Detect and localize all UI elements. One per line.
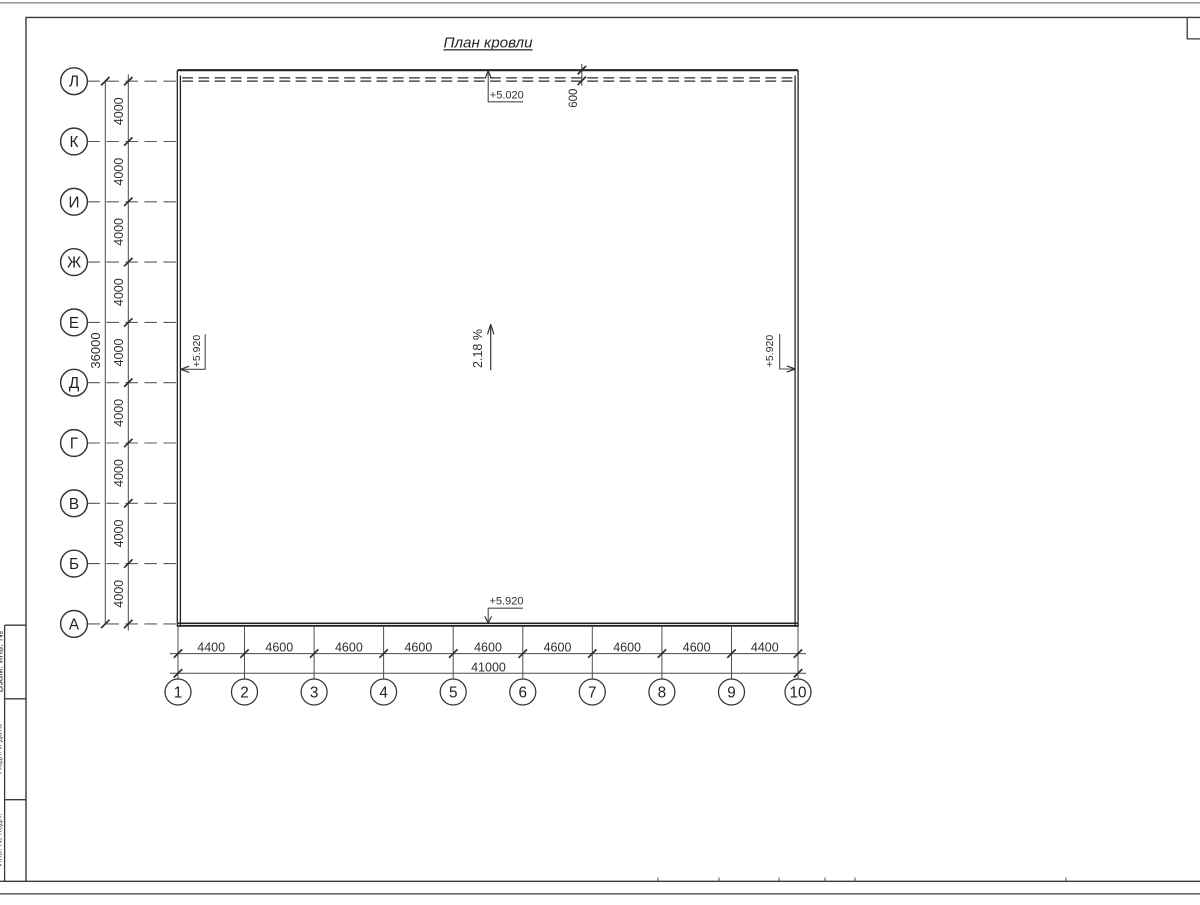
svg-text:4400: 4400 xyxy=(197,640,225,654)
svg-text:Ж: Ж xyxy=(67,255,81,272)
svg-text:4600: 4600 xyxy=(474,640,502,654)
svg-text:Б: Б xyxy=(69,556,79,573)
svg-text:4000: 4000 xyxy=(112,158,126,186)
svg-text:4: 4 xyxy=(379,685,388,702)
svg-text:4600: 4600 xyxy=(335,640,363,654)
svg-text:Е: Е xyxy=(69,315,79,332)
svg-text:6: 6 xyxy=(519,685,528,702)
svg-text:4000: 4000 xyxy=(112,97,126,125)
svg-text:2.18 %: 2.18 % xyxy=(471,329,485,368)
svg-text:+5.920: +5.920 xyxy=(490,595,524,607)
svg-text:И: И xyxy=(69,194,80,211)
svg-text:1: 1 xyxy=(174,685,183,702)
svg-text:Инв. № подл.: Инв. № подл. xyxy=(0,814,4,867)
svg-text:41000: 41000 xyxy=(471,660,506,674)
svg-text:8: 8 xyxy=(658,685,667,702)
svg-text:4600: 4600 xyxy=(404,640,432,654)
svg-text:4000: 4000 xyxy=(112,399,126,427)
svg-text:4600: 4600 xyxy=(613,640,641,654)
svg-text:4000: 4000 xyxy=(112,218,126,246)
svg-text:4400: 4400 xyxy=(751,640,779,654)
svg-text:Подп. и дата: Подп. и дата xyxy=(0,724,4,774)
svg-text:4000: 4000 xyxy=(112,459,126,487)
svg-text:4000: 4000 xyxy=(112,520,126,548)
svg-text:7: 7 xyxy=(588,685,597,702)
svg-text:2: 2 xyxy=(240,685,249,702)
svg-text:4600: 4600 xyxy=(544,640,572,654)
svg-text:Д: Д xyxy=(69,375,80,392)
svg-text:А: А xyxy=(69,616,80,633)
svg-text:В: В xyxy=(69,496,79,513)
svg-text:4000: 4000 xyxy=(112,580,126,608)
svg-text:Г: Г xyxy=(70,436,78,453)
svg-text:4000: 4000 xyxy=(112,278,126,306)
svg-text:3: 3 xyxy=(310,685,319,702)
svg-text:Л: Л xyxy=(69,74,79,91)
svg-text:+5.920: +5.920 xyxy=(764,335,776,368)
svg-text:+5.920: +5.920 xyxy=(191,335,203,368)
svg-text:4000: 4000 xyxy=(112,339,126,367)
svg-text:600: 600 xyxy=(568,89,580,108)
svg-text:+5.020: +5.020 xyxy=(490,90,524,102)
svg-text:К: К xyxy=(70,134,79,151)
svg-text:9: 9 xyxy=(727,685,736,702)
svg-text:5: 5 xyxy=(449,685,458,702)
svg-text:4600: 4600 xyxy=(683,640,711,654)
svg-text:36000: 36000 xyxy=(88,332,103,368)
svg-text:Взам. инв. №: Взам. инв. № xyxy=(0,630,5,692)
svg-text:План кровли: План кровли xyxy=(443,34,533,51)
svg-text:4600: 4600 xyxy=(265,640,293,654)
svg-text:10: 10 xyxy=(789,685,806,702)
